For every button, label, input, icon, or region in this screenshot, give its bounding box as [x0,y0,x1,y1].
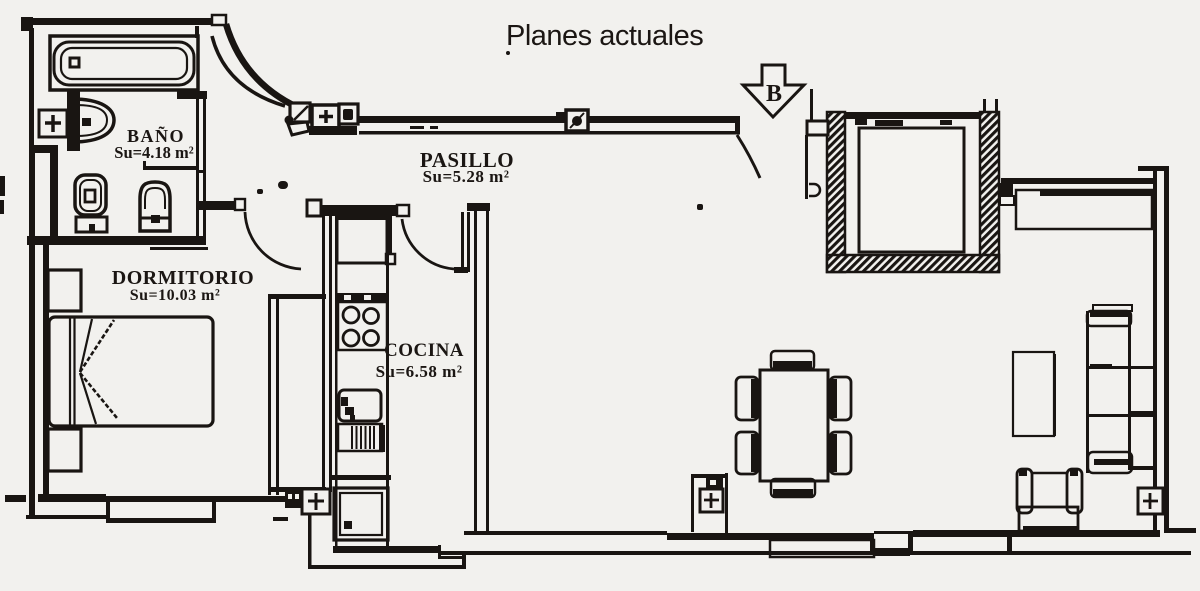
svg-text:DORMITORIO: DORMITORIO [112,267,254,289]
svg-text:Su=4.18 m²: Su=4.18 m² [114,143,193,162]
svg-text:Su=6.58 m²: Su=6.58 m² [376,362,463,381]
svg-text:Su=5.28 m²: Su=5.28 m² [423,167,510,186]
svg-text:Planes actuales: Planes actuales [506,20,703,52]
svg-text:B: B [766,81,782,107]
svg-text:Su=10.03 m²: Su=10.03 m² [130,287,221,304]
svg-text:COCINA: COCINA [384,340,464,361]
